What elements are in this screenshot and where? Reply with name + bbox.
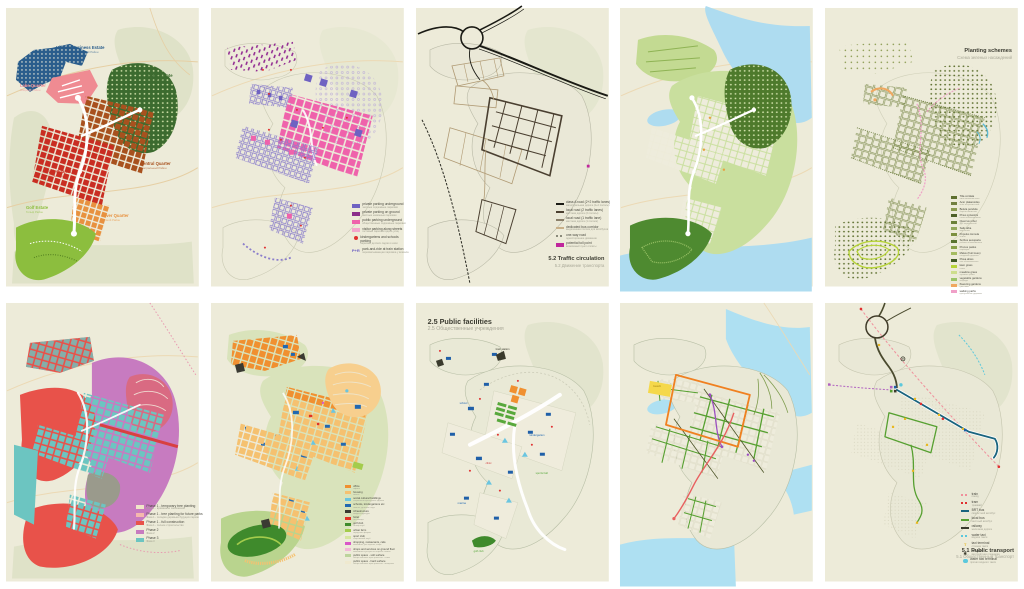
legend-label: park-and-ride at train stationперехватыв…	[362, 248, 408, 255]
district-label-central: Central QuarterЦентральный Район	[140, 162, 171, 170]
legend-row: lawn grassгазон	[951, 264, 982, 270]
facility-label: marina	[458, 503, 466, 506]
legend-row: local road (2 traffic lanes)местная доро…	[556, 209, 611, 216]
legend-swatch	[345, 510, 351, 513]
legend-swatch	[951, 290, 957, 293]
legend-label: Salix albaива белая	[960, 227, 972, 233]
facility-label: kindergarten	[530, 435, 545, 438]
legend-swatch: P+R	[352, 248, 360, 253]
legend-row: Phase 1 - full constructionФаза 1 - полн…	[136, 521, 203, 528]
legend-label: local road (1 traffic lane)местная дорог…	[566, 217, 601, 224]
legend-row: visitor parking along streetsгостевые па…	[352, 228, 410, 235]
traffic-map-graphic	[410, 0, 615, 295]
facility-label: train station	[496, 349, 510, 352]
legend-swatch	[352, 220, 360, 224]
legend-row: urban farmгородская ферма	[345, 529, 395, 535]
legend-swatch	[345, 542, 351, 545]
legend-row: class A road (2+2 traffic lanes)магистра…	[556, 201, 611, 208]
panel-phasing: Phase 1 - temporary tree plantingФаза 1 …	[0, 295, 205, 589]
legend-row: local road (1 traffic lane)местная дорог…	[556, 217, 611, 224]
legend-swatch	[354, 236, 358, 240]
legend-label: BRT busскоростной автобус	[972, 509, 996, 516]
legend-label: potential toll pointвозможный пункт опла…	[566, 242, 596, 249]
legend-row: flowering gardensцветники	[951, 283, 982, 289]
legend-label: tramтрамвай	[972, 501, 982, 508]
legend-swatch	[961, 519, 969, 521]
map-board: Hillside Business EstateДеловой Междунар…	[0, 0, 1024, 589]
legend-row: Salix albaива белая	[951, 227, 982, 233]
legend-label: lawn grassгазон	[960, 264, 973, 270]
legend-swatch	[345, 485, 351, 488]
legend-label: kindergartens and schools parkingпарковк…	[360, 236, 409, 246]
legend-row: kindergartens and schools parkingпарковк…	[352, 236, 410, 246]
legend-label: public space - soft surfaceобщественные …	[353, 554, 390, 560]
legend-swatch	[951, 246, 957, 249]
panel-parking: private parking undergroundчастные подзе…	[205, 0, 410, 295]
facility-label: school	[460, 403, 468, 406]
legend-swatch	[345, 561, 351, 564]
legend-swatch	[951, 196, 957, 199]
legend-row: Phase 2Фаза 2	[136, 529, 203, 536]
legend-row: public parking undergroundобщественные п…	[352, 219, 410, 226]
legend-row: schools, kindergartens etcшколы, детские…	[345, 503, 395, 509]
phasing-map-graphic	[0, 295, 205, 589]
legend-row: one-way roadодностороннее движение	[556, 234, 611, 241]
legend-swatch	[951, 214, 957, 217]
legend-swatch	[556, 235, 564, 237]
legend-row: tramтрамвай	[961, 501, 999, 508]
legend-row: hotelгостиницы	[345, 516, 395, 522]
traffic-legend: class A road (2+2 traffic lanes)магистра…	[556, 201, 611, 249]
legend-swatch	[951, 233, 957, 236]
legend-swatch	[352, 228, 360, 232]
legend-swatch	[345, 517, 351, 520]
legend-label: golf clubгольф-клуб	[353, 522, 365, 528]
legend-label: Phase 3Фаза 3	[146, 537, 158, 544]
legend-row: local busместный автобус	[961, 517, 999, 524]
district-label-lake: Lake QuarterОзёрный Район	[20, 84, 46, 92]
legend-swatch	[961, 510, 969, 512]
legend-label: sport clubспортивный клуб	[353, 535, 370, 541]
legend-row: Sorbus aucupariaрябина обыкновенная	[951, 239, 982, 245]
legend-label: social cultural buildingsсоциально-культ…	[353, 497, 384, 503]
legend-row: potential toll pointвозможный пункт опла…	[556, 242, 611, 249]
legend-label: Phase 1 - full constructionФаза 1 - полн…	[146, 521, 184, 528]
legend-row: Populus tremulaосина	[951, 233, 982, 239]
transport-title: 5.1 Public transport 5.1 Общественный тр…	[956, 548, 1014, 560]
legend-label: Phase 2Фаза 2	[146, 529, 158, 536]
legend-swatch	[951, 271, 957, 274]
legend-label: urban farmгородская ферма	[353, 529, 371, 535]
legend-label: private parking on groundчастные наземны…	[362, 211, 399, 218]
beach-label: beach	[653, 386, 661, 389]
legend-row: Quercus roburдуб черешчатый	[951, 220, 982, 226]
panel-landuse: officeофисы housingжильё social cultural…	[205, 295, 410, 589]
legend-row: private parking undergroundчастные подзе…	[352, 203, 410, 210]
legend-swatch	[352, 212, 360, 216]
legend-label: Populus tremulaосина	[960, 233, 979, 239]
legend-row: officeофисы	[345, 485, 395, 491]
legend-swatch	[556, 211, 564, 213]
legend-label: Sorbus aucupariaрябина обыкновенная	[960, 239, 982, 245]
legend-row: private parking on groundчастные наземны…	[352, 211, 410, 218]
legend-swatch	[951, 202, 957, 205]
legend-row: Phase 1 - temporary tree plantingФаза 1 …	[136, 505, 203, 512]
legend-label: visitor parking along streetsгостевые па…	[362, 228, 402, 235]
legend-label: Prunus padusчерёмуха	[960, 246, 977, 252]
panel-traffic: class A road (2+2 traffic lanes)магистра…	[410, 0, 615, 295]
legend-row: water taxiводное такси	[961, 534, 999, 541]
panel-landscape	[614, 0, 819, 295]
legend-label: Phase 1 - temporary tree plantingФаза 1 …	[146, 505, 195, 512]
legend-row: Tilia cordataлипа мелколистная	[951, 195, 982, 201]
facility-label: golf club	[474, 551, 484, 554]
phasing-legend: Phase 1 - temporary tree plantingФаза 1 …	[136, 505, 203, 545]
legend-swatch	[961, 535, 969, 537]
legend-label: Quercus roburдуб черешчатый	[960, 220, 977, 226]
legend-row: trainпоезд	[961, 493, 999, 500]
legend-swatch	[951, 265, 957, 268]
legend-swatch	[951, 240, 957, 243]
legend-label: water taxiводное такси	[972, 534, 988, 541]
district-label-golf: Golf EstateГольф Район	[26, 206, 48, 214]
planting-title: Planting schemes Схема зеленых насаждени…	[957, 48, 1012, 60]
legend-row: public space - soft surfaceобщественные …	[345, 554, 395, 560]
legend-swatch	[556, 219, 564, 221]
legend-swatch	[345, 504, 351, 507]
legend-swatch	[345, 529, 351, 532]
panel-streets: beach	[614, 295, 819, 589]
legend-label: shopping, restaurants, cafeмагазины, рес…	[353, 541, 385, 547]
legend-label: railwayжелезная дорога	[972, 525, 992, 532]
facility-label: sports hall	[536, 473, 548, 476]
legend-label: Malus (fruit trees)плодовые деревья	[960, 252, 981, 258]
district-label-park: Park QuarterПарковый Район	[46, 170, 71, 178]
legend-swatch	[345, 491, 351, 494]
legend-swatch	[345, 523, 351, 526]
legend-label: flowering gardensцветники	[960, 283, 981, 289]
legend-swatch	[345, 548, 351, 551]
landscape-map-graphic	[614, 0, 819, 295]
legend-row: shopping, restaurants, cafeмагазины, рес…	[345, 541, 395, 547]
legend-label: public parking undergroundобщественные п…	[362, 219, 406, 226]
district-label-hillside: Hillside Business EstateДеловой Междунар…	[56, 46, 104, 54]
legend-swatch	[951, 221, 957, 224]
legend-row: public space - hard surfaceобщественные …	[345, 560, 395, 566]
legend-row: Phase 1 - tree planting for future parks…	[136, 513, 203, 520]
landuse-legend: officeофисы housingжильё social cultural…	[345, 485, 395, 566]
legend-row: Betula pendulaберёза повислая	[951, 208, 982, 214]
legend-label: infrastructureинфраструктура	[353, 510, 370, 516]
legend-row: BRT busскоростной автобус	[961, 509, 999, 516]
legend-row: P+R park-and-ride at train stationперехв…	[352, 248, 410, 255]
legend-swatch	[961, 502, 969, 504]
parking-legend: private parking undergroundчастные подзе…	[352, 203, 410, 255]
legend-label: public space - hard surfaceобщественные …	[353, 560, 394, 566]
legend-swatch	[345, 536, 351, 539]
traffic-title: 5.2 Traffic circulation 5.2 Движение тра…	[548, 256, 604, 268]
legend-label: private parking undergroundчастные подзе…	[362, 203, 403, 210]
legend-label: dedicated bus corridorвыделенная полоса …	[566, 226, 608, 233]
legend-swatch	[136, 530, 144, 534]
panel-masterplan: Hillside Business EstateДеловой Междунар…	[0, 0, 205, 295]
legend-label: housingжильё	[353, 491, 362, 497]
legend-swatch	[961, 494, 969, 496]
legend-label: Pinus sylvestrisсосна обыкновенная	[960, 214, 981, 220]
legend-row: housingжильё	[345, 491, 395, 497]
legend-swatch	[951, 227, 957, 230]
district-label-river: River QuarterРечной Район	[102, 214, 129, 222]
legend-row: infrastructureинфраструктура	[345, 510, 395, 516]
legend-label: schools, kindergartens etcшколы, детские…	[353, 503, 384, 509]
legend-label: trainпоезд	[972, 493, 979, 500]
legend-row: railwayжелезная дорога	[961, 525, 999, 532]
legend-swatch	[951, 252, 957, 255]
panel-facilities: 2.5 Public facilities 2.5 Общественные у…	[410, 295, 615, 589]
panel-planting: Planting schemes Схема зеленых насаждени…	[819, 0, 1024, 295]
legend-swatch	[136, 521, 144, 525]
legend-swatch	[961, 527, 969, 529]
district-label-forest: Forest EstateЛесной Район	[146, 74, 173, 82]
legend-label: officeофисы	[353, 485, 360, 491]
legend-swatch	[951, 284, 957, 287]
legend-row: Acer platanoidesклён остролистный	[951, 201, 982, 207]
legend-swatch	[345, 554, 351, 557]
legend-swatch	[136, 505, 144, 509]
legend-row: meadow grassлуговые травы	[951, 271, 982, 277]
legend-row: Picea abiesель обыкновенная	[951, 258, 982, 264]
legend-swatch	[136, 538, 144, 542]
legend-label: Acer platanoidesклён остролистный	[960, 201, 980, 207]
legend-row: vegetable gardensогороды	[951, 277, 982, 283]
legend-row: Pinus sylvestrisсосна обыкновенная	[951, 214, 982, 220]
legend-swatch	[556, 227, 564, 229]
legend-swatch	[556, 203, 564, 205]
legend-swatch	[136, 513, 144, 517]
legend-label: one-way roadодностороннее движение	[566, 234, 597, 241]
legend-label: class A road (2+2 traffic lanes)магистра…	[566, 201, 610, 208]
facilities-map-graphic	[410, 295, 615, 589]
legend-swatch	[951, 208, 957, 211]
legend-swatch	[951, 278, 957, 281]
legend-row: golf clubгольф-клуб	[345, 522, 395, 528]
facilities-title: 2.5 Public facilities 2.5 Общественные у…	[428, 317, 504, 333]
legend-label: Picea abiesель обыкновенная	[960, 258, 979, 264]
legend-row: dedicated bus corridorвыделенная полоса …	[556, 226, 611, 233]
legend-label: Tilia cordataлипа мелколистная	[960, 195, 980, 201]
legend-label: Betula pendulaберёза повислая	[960, 208, 978, 214]
legend-row: Prunus padusчерёмуха	[951, 246, 982, 252]
legend-label: meadow grassлуговые травы	[960, 271, 977, 277]
legend-row: Malus (fruit trees)плодовые деревья	[951, 252, 982, 258]
legend-label: Phase 1 - tree planting for future parks…	[146, 513, 202, 520]
legend-label: vegetable gardensогороды	[960, 277, 982, 283]
legend-label: local busместный автобус	[972, 517, 993, 524]
legend-row: shops and services on ground floorмагази…	[345, 548, 395, 554]
facility-label: clinic	[486, 463, 492, 466]
planting-map-graphic	[819, 0, 1024, 295]
panel-transport: trainпоезд tramтрамвай BRT busскоростной…	[819, 295, 1024, 589]
legend-swatch	[352, 204, 360, 208]
legend-row: social cultural buildingsсоциально-культ…	[345, 497, 395, 503]
legend-label: shops and services on ground floorмагази…	[353, 548, 395, 554]
legend-label: local road (2 traffic lanes)местная доро…	[566, 209, 603, 216]
legend-row: Phase 3Фаза 3	[136, 537, 203, 544]
legend-label: hotelгостиницы	[353, 516, 364, 522]
streets-map-graphic	[614, 295, 819, 589]
legend-swatch	[556, 243, 564, 247]
legend-row: sport clubспортивный клуб	[345, 535, 395, 541]
legend-swatch	[951, 259, 957, 262]
legend-swatch	[345, 498, 351, 501]
planting-legend: Tilia cordataлипа мелколистная Acer plat…	[951, 195, 982, 295]
